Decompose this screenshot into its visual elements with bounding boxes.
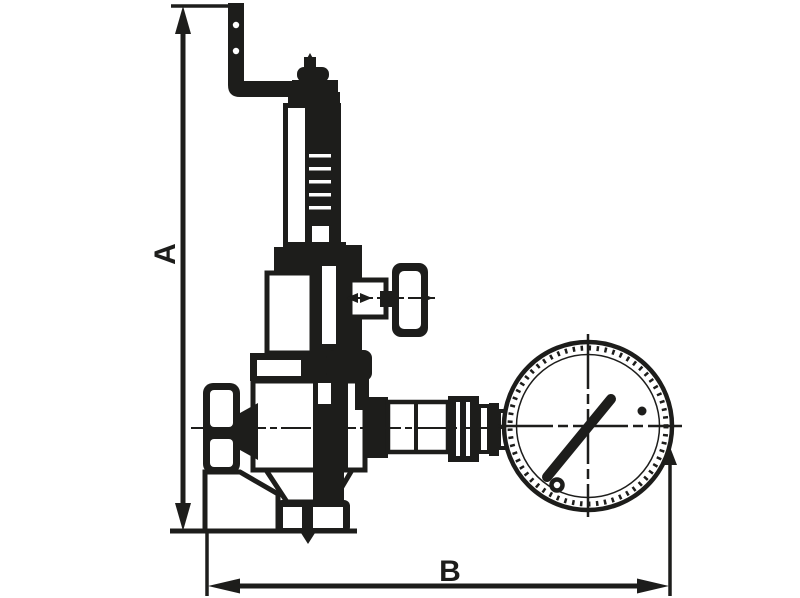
bonnet-box <box>267 273 312 353</box>
gauge-screw-upper <box>638 407 647 416</box>
pressure-gauge <box>498 334 682 517</box>
gauge-screw-lower <box>552 480 563 491</box>
dim-a-arrow-up <box>175 6 191 34</box>
body-center-slot <box>318 383 331 404</box>
cap-base <box>292 80 338 93</box>
left-handwheel-window-upper <box>210 390 233 427</box>
housing-highlight-strip <box>288 108 305 244</box>
cap-dome <box>297 67 329 82</box>
outlet-flange-window-right <box>313 507 343 528</box>
column-slot <box>322 266 336 344</box>
outlet-column <box>313 470 344 504</box>
dim-b-arrow-left <box>208 579 240 594</box>
technical-drawing-page: A B <box>0 0 800 598</box>
housing-top-flange <box>288 92 340 104</box>
side-handwheel-window <box>399 271 421 329</box>
left-handwheel-window-lower <box>210 439 233 467</box>
dim-b-label: B <box>439 555 461 588</box>
body-block <box>253 381 365 470</box>
left-handwheel-stem <box>240 403 258 460</box>
handle-hole-upper <box>233 22 239 28</box>
flange-bolt <box>274 247 294 258</box>
valve-assembly <box>191 3 513 544</box>
dim-b-arrow-right <box>637 579 669 594</box>
dim-a-label: A <box>149 243 182 265</box>
outlet-tip <box>301 533 315 544</box>
dim-a-arrow-down <box>175 503 191 531</box>
outlet-flange-window-left <box>283 507 302 528</box>
body-top-flange-window <box>257 360 301 376</box>
handle-hole-lower <box>233 48 239 54</box>
body-left-bracket <box>205 472 278 531</box>
stem-cap <box>288 53 340 104</box>
valve-with-gauge-drawing: A B <box>0 0 800 598</box>
